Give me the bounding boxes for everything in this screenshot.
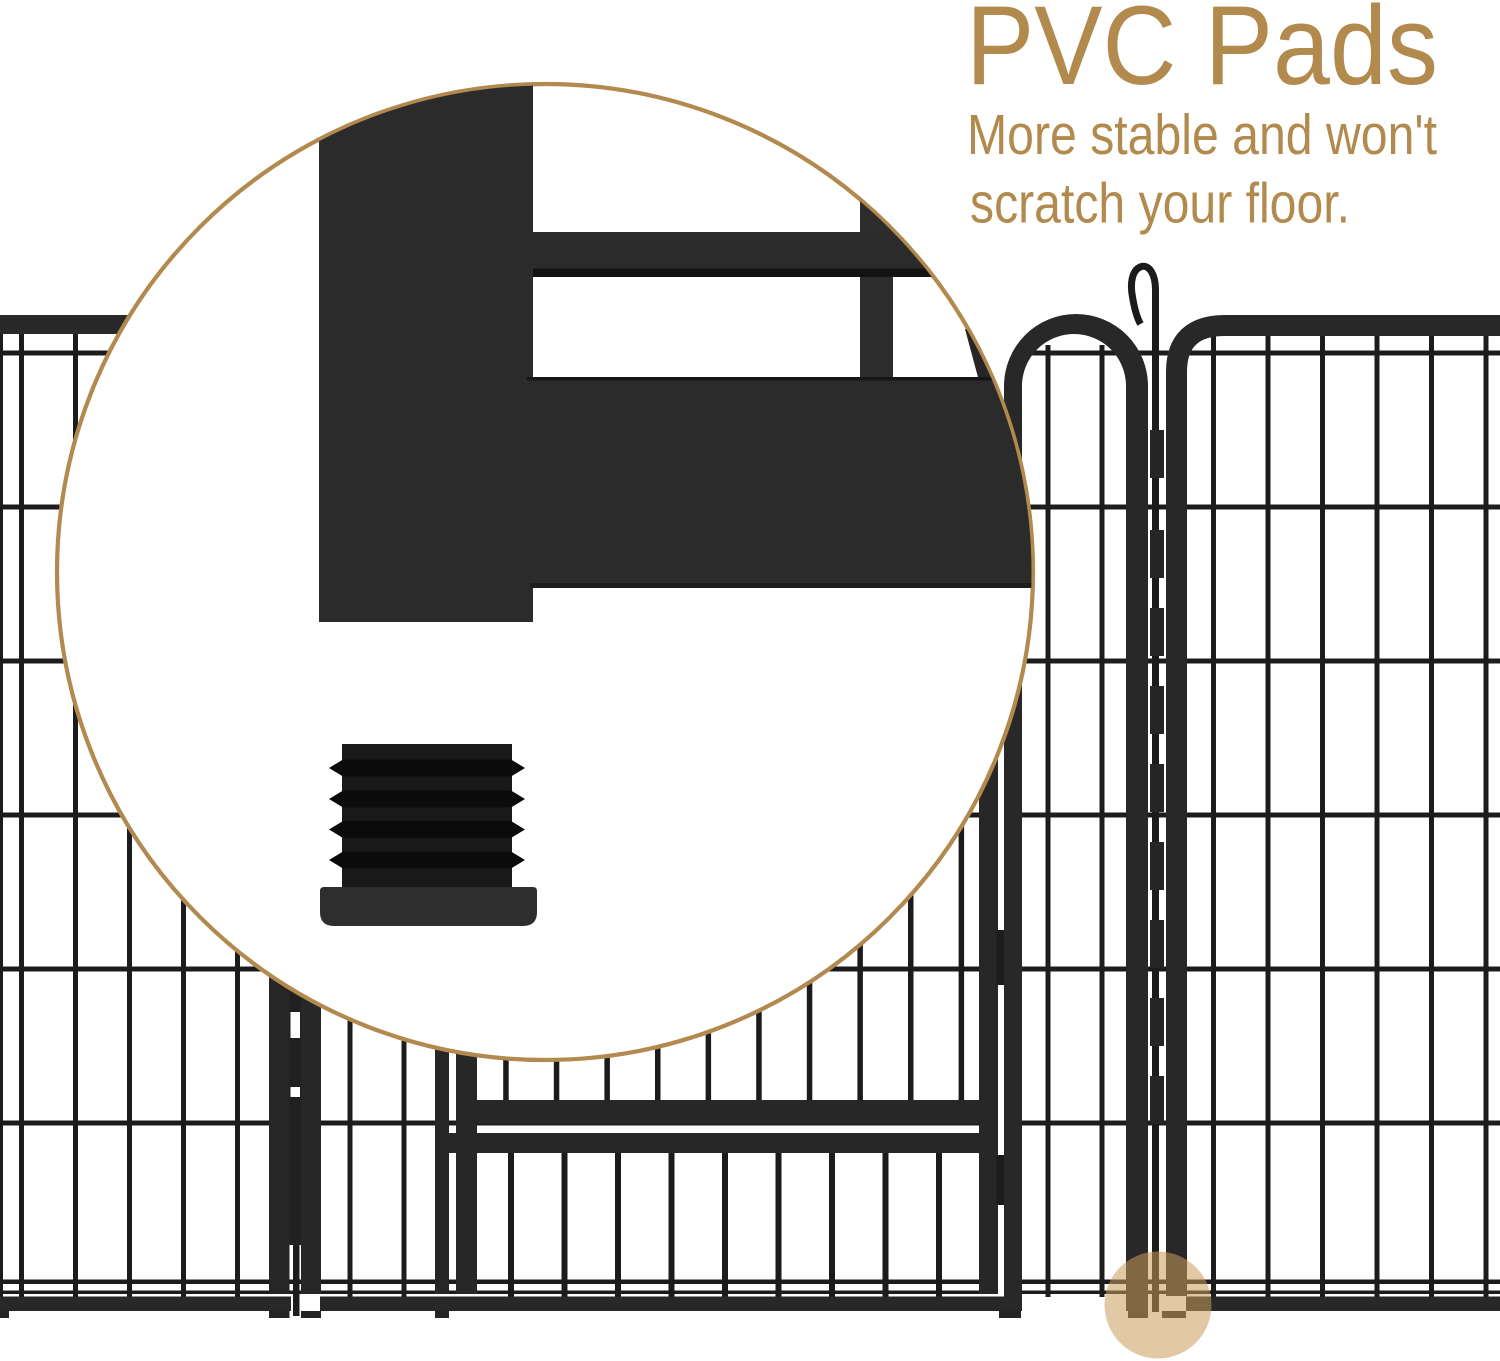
svg-text:More stable and won't: More stable and won't: [967, 103, 1437, 167]
svg-text:scratch your floor.: scratch your floor.: [970, 172, 1350, 236]
svg-text:PVC Pads: PVC Pads: [966, 0, 1438, 108]
